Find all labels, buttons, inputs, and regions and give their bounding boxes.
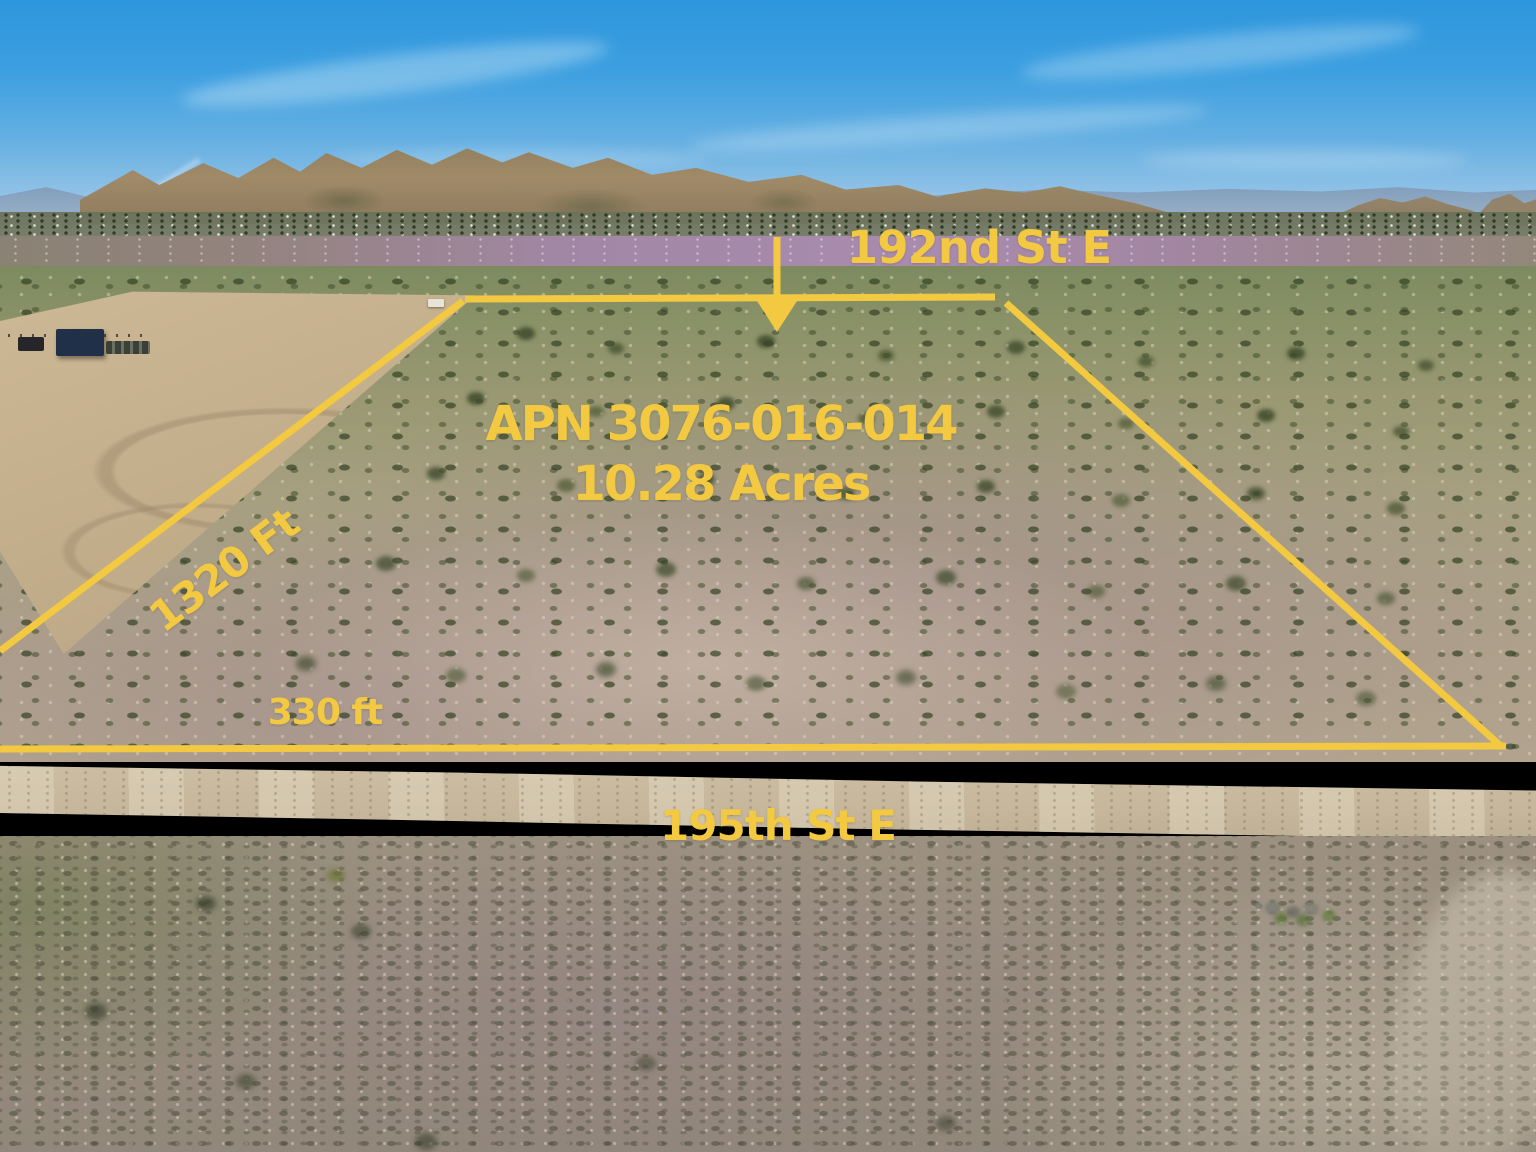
down-arrow-icon [757, 301, 797, 332]
boundary-west-line [0, 301, 463, 651]
street-label-195th: 195th St E [660, 801, 896, 850]
boundary-south-line [0, 746, 1506, 749]
street-label-192nd: 192nd St E [847, 221, 1111, 274]
south-dimension-label: 330 ft [268, 692, 383, 733]
boundary-north-line [465, 297, 995, 299]
parcel-info-label: APN 3076-016-014 10.28 Acres [485, 394, 956, 514]
aerial-parcel-photo: 192nd St E APN 3076-016-014 10.28 Acres … [0, 0, 1536, 1152]
boundary-east-line [1006, 303, 1502, 747]
acreage-label: 10.28 Acres [485, 454, 956, 514]
apn-number-label: APN 3076-016-014 [485, 394, 956, 454]
